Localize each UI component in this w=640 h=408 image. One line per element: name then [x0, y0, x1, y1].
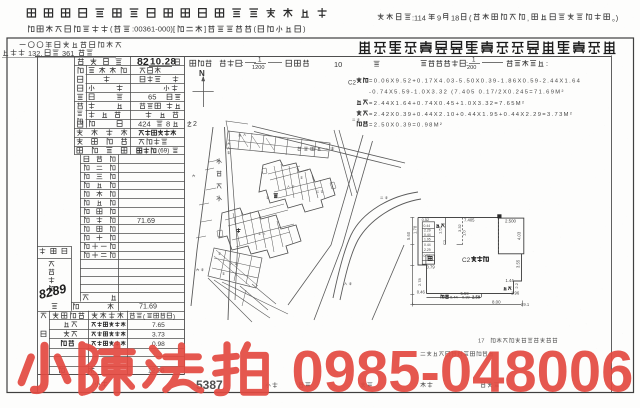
- svg-text:8: 8: [166, 119, 170, 128]
- svg-text:-0.74X5.59-1.0X3.32 (7.405 0.1: -0.74X5.59-1.0X3.32 (7.405 0.17/2X0.245=…: [369, 90, 565, 96]
- svg-text:65: 65: [148, 93, 156, 102]
- svg-text:0.44: 0.44: [450, 294, 459, 299]
- svg-text::: :: [546, 59, 548, 68]
- svg-text:29.1: 29.1: [521, 302, 530, 307]
- svg-text:0.44: 0.44: [424, 224, 431, 228]
- svg-text:1.95: 1.95: [424, 237, 431, 241]
- svg-text:0985-048006: 0985-048006: [292, 340, 634, 405]
- svg-text:10.28: 10.28: [150, 57, 176, 68]
- svg-text:1.0: 1.0: [462, 230, 467, 236]
- svg-text:0.52: 0.52: [422, 217, 430, 222]
- svg-text:424: 424: [138, 119, 151, 128]
- svg-text:]: ]: [204, 25, 206, 34]
- svg-text:2.2: 2.2: [514, 282, 519, 288]
- svg-text:C2: C2: [442, 239, 447, 245]
- svg-text:C2: C2: [462, 257, 471, 264]
- svg-text:1.44: 1.44: [506, 278, 515, 283]
- svg-text:C2: C2: [348, 79, 356, 86]
- svg-text:2.78: 2.78: [417, 277, 422, 286]
- svg-text:7.405: 7.405: [464, 217, 475, 222]
- svg-text:2: 2: [193, 121, 197, 128]
- svg-text:200: 200: [467, 65, 476, 71]
- svg-text:N: N: [199, 69, 205, 78]
- svg-text:2.29: 2.29: [424, 248, 431, 252]
- svg-text:1200: 1200: [252, 65, 264, 71]
- svg-text:4.03: 4.03: [517, 231, 522, 240]
- svg-text:0.79: 0.79: [427, 264, 436, 269]
- svg-text:0.44: 0.44: [424, 243, 431, 247]
- svg-text:82: 82: [137, 56, 149, 68]
- svg-text:7.65: 7.65: [152, 322, 165, 329]
- svg-text:3.55: 3.55: [516, 259, 521, 268]
- svg-text:1.96: 1.96: [511, 290, 520, 295]
- svg-text:1: 1: [472, 57, 476, 64]
- svg-text:9: 9: [437, 13, 441, 22]
- svg-text:,: ,: [527, 13, 529, 22]
- svg-text:0.44: 0.44: [424, 233, 431, 237]
- svg-text::: :: [242, 59, 244, 68]
- svg-text:0.39: 0.39: [462, 294, 471, 299]
- svg-text:2.500: 2.500: [505, 219, 517, 224]
- svg-text::00361-000)[: :00361-000)[: [132, 25, 176, 34]
- svg-text:18: 18: [451, 13, 459, 22]
- svg-text:): ): [173, 313, 175, 320]
- svg-text:71.69: 71.69: [137, 216, 155, 225]
- svg-text:71.69: 71.69: [139, 302, 157, 311]
- svg-text:10: 10: [334, 60, 342, 69]
- svg-text:=0.06X9.52+0.17X4.03-5.50X0.39: =0.06X9.52+0.17X4.03-5.50X0.39-1.86X0.59…: [369, 79, 581, 85]
- svg-text::114: :114: [412, 13, 426, 22]
- svg-text:5.60: 5.60: [406, 231, 411, 240]
- svg-text:0.46: 0.46: [417, 289, 426, 294]
- svg-text:3.73: 3.73: [152, 331, 165, 338]
- svg-text:=2.42X0.39+0.44X2.10+0.44X1.95: =2.42X0.39+0.44X2.10+0.44X1.95+0.44X2.29…: [369, 112, 573, 118]
- svg-text:1.52: 1.52: [438, 225, 443, 234]
- svg-text:2.59: 2.59: [472, 294, 481, 299]
- svg-text:1: 1: [258, 57, 262, 64]
- svg-text:=2.44X1.64+0.74X0.45+1.0X3.32=: =2.44X1.64+0.74X0.45+1.0X3.32=7.65M²: [369, 101, 525, 107]
- svg-text:1.78: 1.78: [413, 225, 418, 234]
- svg-text:。): 。): [612, 13, 618, 22]
- svg-text:=2.50X0.39=0.98M²: =2.50X0.39=0.98M²: [369, 123, 443, 129]
- svg-text:(69): (69): [158, 148, 169, 155]
- svg-text:8.00: 8.00: [492, 300, 501, 305]
- svg-text:3.32: 3.32: [457, 223, 462, 232]
